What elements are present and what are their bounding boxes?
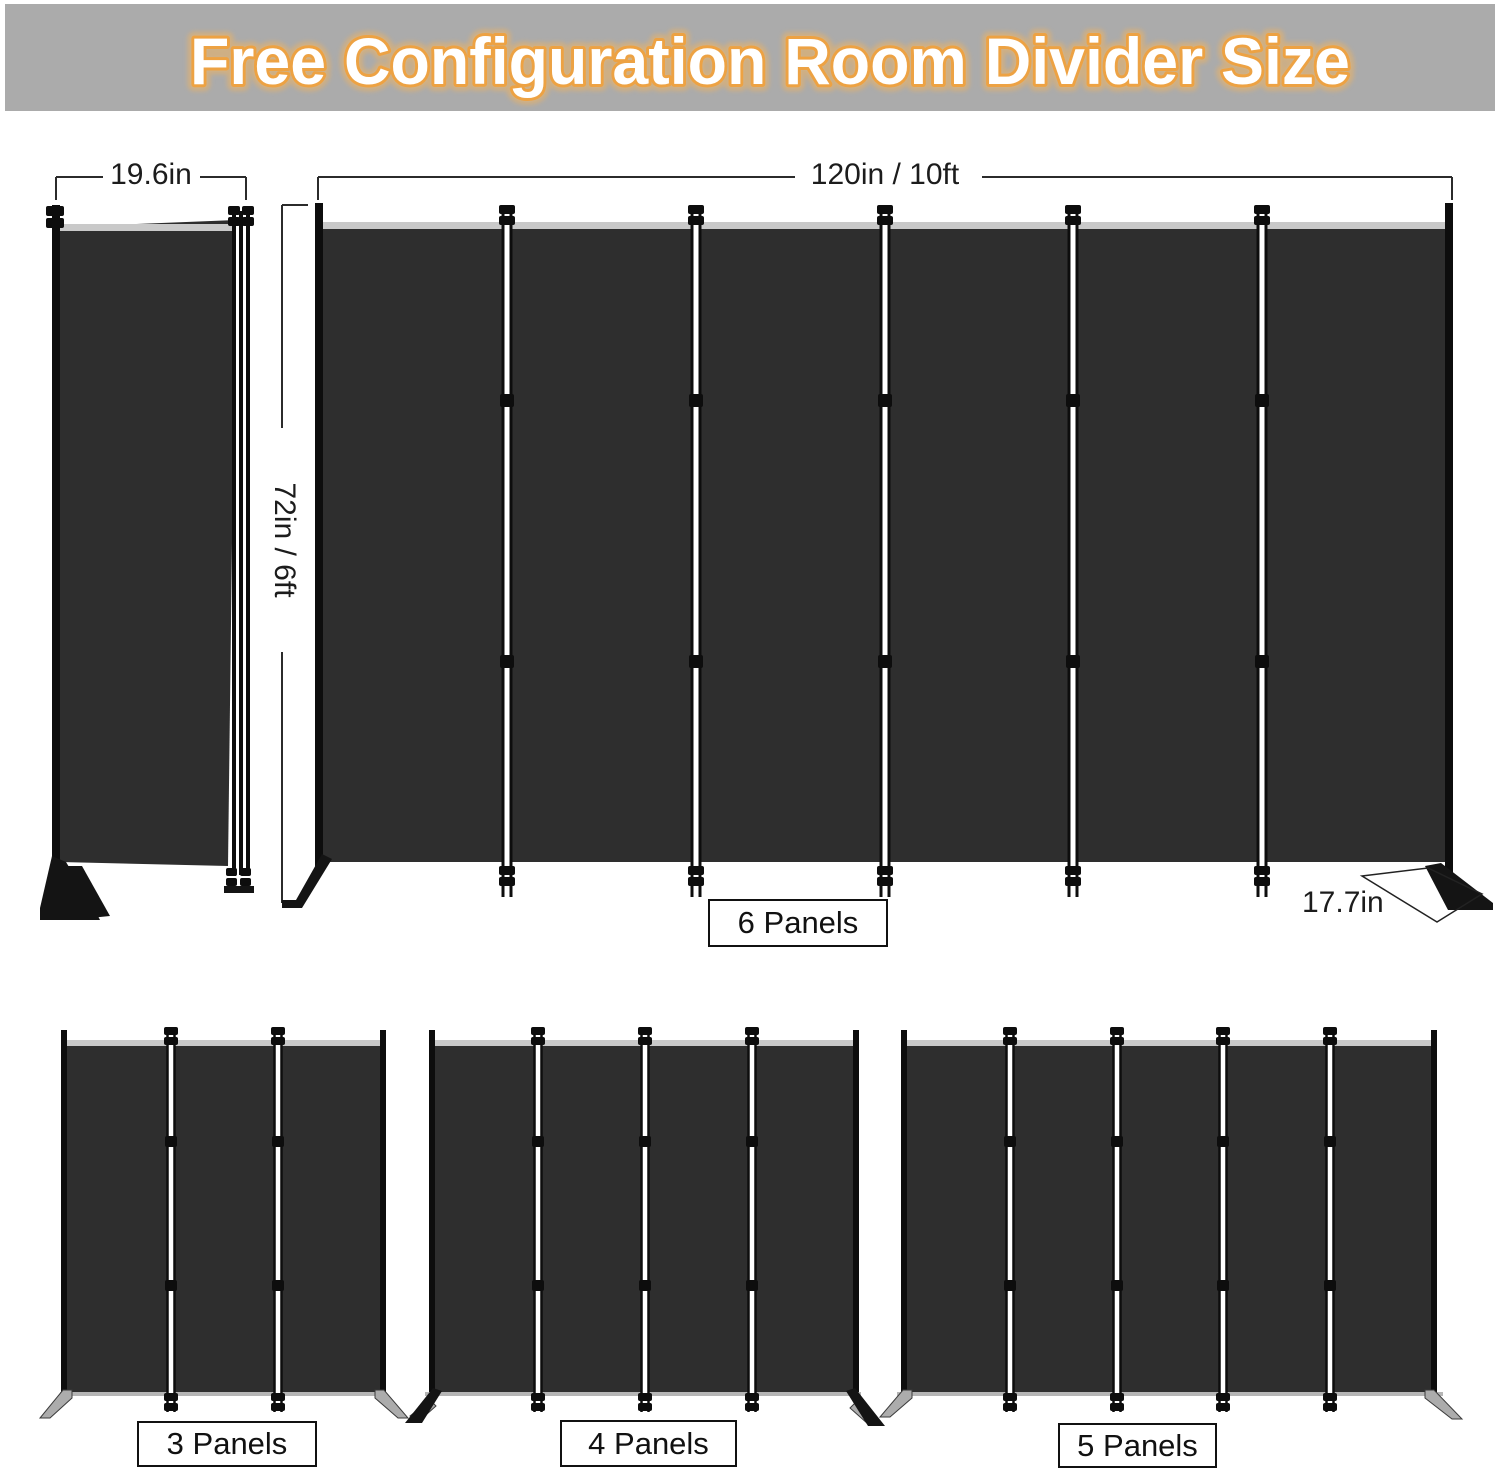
four-panel-caption: 4 Panels: [560, 1420, 737, 1467]
three-panel-caption: 3 Panels: [137, 1421, 317, 1467]
room-divider-diagram: [0, 0, 1500, 1466]
five-panel-caption: 5 Panels: [1058, 1423, 1217, 1468]
five-panel-divider: [880, 1027, 1462, 1419]
six-panel-caption: 6 Panels: [708, 899, 888, 947]
three-panel-divider: [40, 1027, 408, 1418]
dimension-label-foot-depth: 17.7in: [1302, 886, 1412, 920]
dimension-label-height: 72in / 6ft: [263, 440, 301, 640]
six-panel-divider: [282, 203, 1493, 910]
dimension-label-folded-width: 19.6in: [56, 158, 246, 192]
folded-divider-illustration: [40, 205, 254, 920]
four-panel-divider: [405, 1027, 885, 1426]
dimension-label-total-width: 120in / 10ft: [318, 158, 1452, 192]
